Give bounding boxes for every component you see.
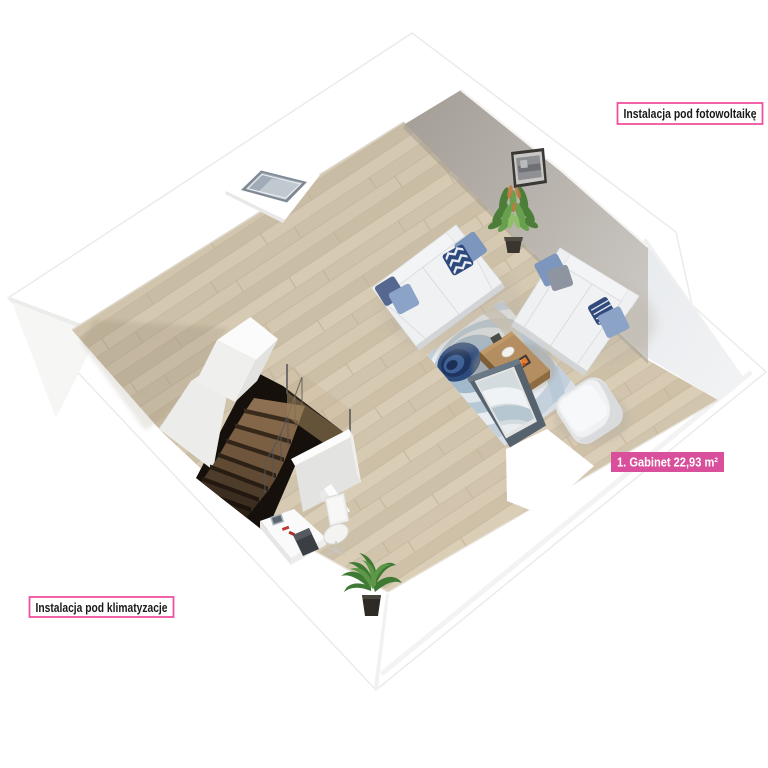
svg-text:Instalacja pod klimatyzacje: Instalacja pod klimatyzacje [36, 601, 168, 615]
svg-text:Instalacja pod fotowoltaikę: Instalacja pod fotowoltaikę [624, 107, 757, 121]
svg-text:1. Gabinet 22,93 m²: 1. Gabinet 22,93 m² [617, 456, 718, 470]
